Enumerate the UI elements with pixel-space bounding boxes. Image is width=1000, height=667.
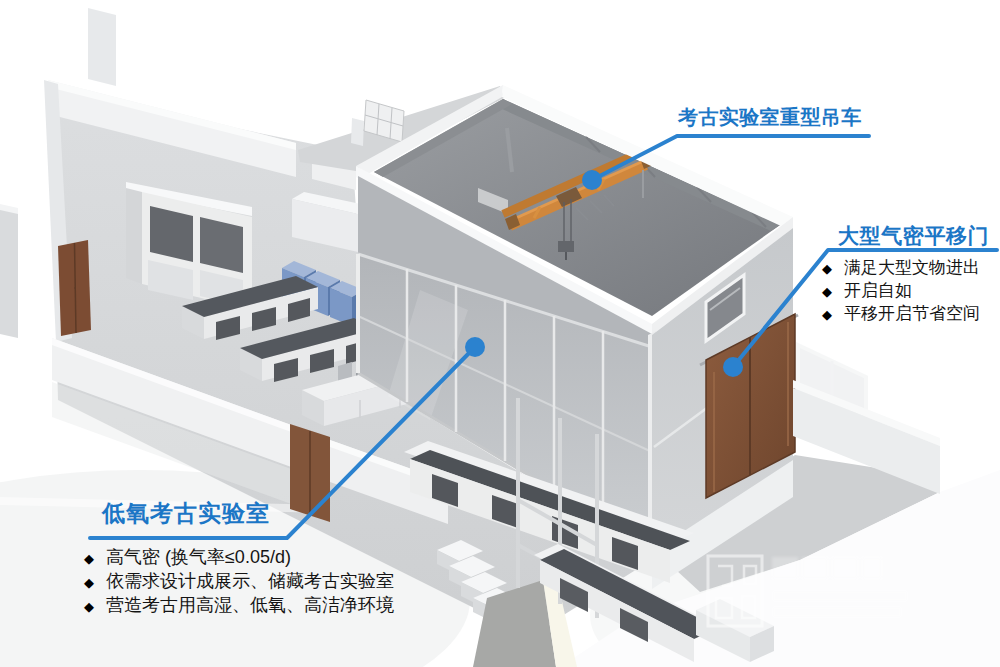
diamond-bullet-icon: ◆: [822, 304, 832, 326]
bullet-text: 满足大型文物进出: [844, 257, 980, 279]
crane-callout-title: 考古实验室重型吊车: [678, 104, 862, 131]
list-item: ◆ 开启自如: [822, 280, 980, 303]
diamond-bullet-icon: ◆: [84, 595, 94, 618]
distant-wall-panel: [88, 8, 116, 86]
diamond-bullet-icon: ◆: [822, 281, 832, 303]
left-edge-column: [0, 204, 18, 338]
bullet-text: 高气密 (换气率≤0.05/d): [106, 546, 291, 569]
door-callout-title: 大型气密平移门: [838, 222, 989, 250]
door-callout-bullets: ◆ 满足大型文物进出 ◆ 开启自如 ◆ 平移开启节省空间: [822, 257, 980, 326]
diamond-bullet-icon: ◆: [822, 258, 832, 280]
diamond-bullet-icon: ◆: [84, 547, 94, 570]
list-item: ◆ 高气密 (换气率≤0.05/d): [84, 546, 394, 570]
lab-callout-bullets: ◆ 高气密 (换气率≤0.05/d) ◆ 依需求设计成展示、储藏考古实验室 ◆ …: [84, 546, 394, 618]
list-item: ◆ 平移开启节省空间: [822, 303, 980, 326]
slide: 考古实验室重型吊车 大型气密平移门 ◆ 满足大型文物进出 ◆ 开启自如 ◆ 平移…: [0, 0, 1000, 667]
list-item: ◆ 营造考古用高湿、低氧、高洁净环境: [84, 594, 394, 618]
bullet-text: 依需求设计成展示、储藏考古实验室: [106, 570, 394, 593]
bullet-text: 平移开启节省空间: [844, 303, 980, 325]
crane-callout-dot: [582, 170, 602, 190]
diamond-bullet-icon: ◆: [84, 571, 94, 594]
bullet-text: 营造考古用高湿、低氧、高洁净环境: [106, 594, 394, 617]
list-item: ◆ 依需求设计成展示、储藏考古实验室: [84, 570, 394, 594]
bullet-text: 开启自如: [844, 280, 912, 302]
lab-callout-dot: [465, 337, 485, 357]
door-callout-dot: [723, 357, 743, 377]
list-item: ◆ 满足大型文物进出: [822, 257, 980, 280]
lab-callout-title: 低氧考古实验室: [102, 498, 270, 529]
